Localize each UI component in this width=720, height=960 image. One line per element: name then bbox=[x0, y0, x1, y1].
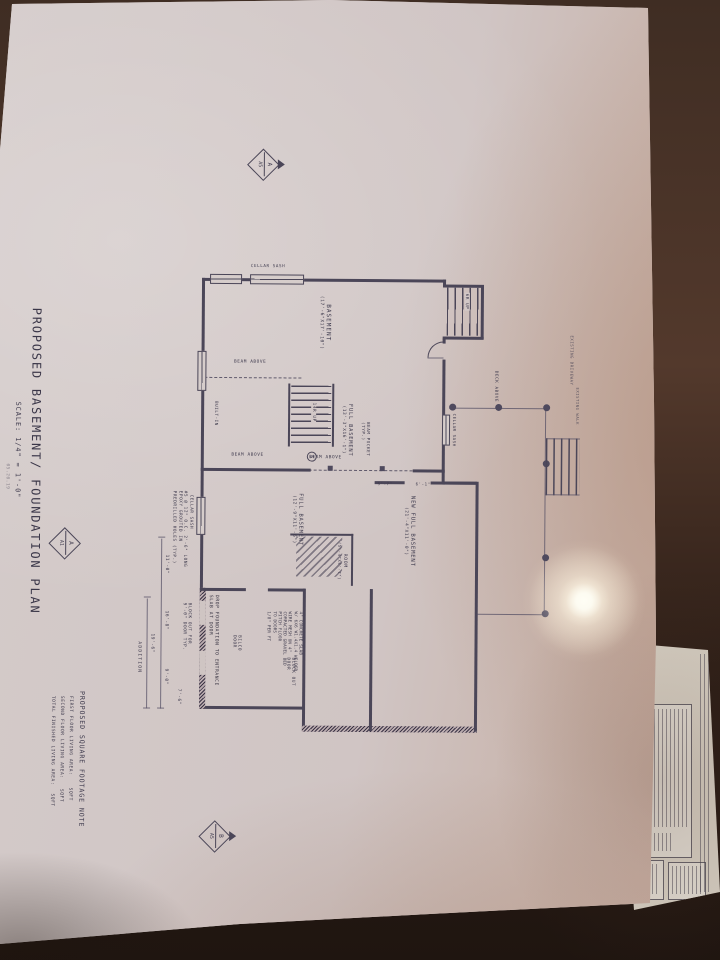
beam-pocket-label: BEAM POCKET (TYP.) bbox=[360, 422, 371, 456]
scale-label: SCALE: 1/4" = 1'-0" bbox=[13, 402, 22, 499]
dimension-tick bbox=[158, 537, 165, 538]
new-foundation-wall bbox=[302, 726, 477, 733]
dim-19-6: 19'-6" bbox=[149, 634, 155, 654]
cellar-sash-window bbox=[196, 497, 205, 535]
dim-9-0: 9'-0" bbox=[163, 669, 169, 685]
dim-5-7: 5'-7" bbox=[378, 481, 393, 486]
cellar-sash-window bbox=[250, 274, 304, 284]
revision-note: 05.20.19 bbox=[4, 463, 10, 489]
drop-foundation-note: DROP FOUNDATION TO ENTRANCE SLAB AT DOOR bbox=[207, 595, 219, 686]
deck-above-label: DECK ABOVE bbox=[494, 371, 499, 402]
block-out-for-line2: 9'-0" DOOR TYP. bbox=[181, 603, 187, 651]
wall bbox=[351, 534, 353, 586]
cellar-sash-label: CELLAR SASH bbox=[452, 414, 457, 447]
cellar-sash-window bbox=[442, 415, 450, 446]
door-block-out bbox=[200, 601, 206, 625]
room-name: FULL BASEMENT bbox=[346, 404, 353, 456]
dim-6-1: 6'-1" bbox=[416, 481, 431, 486]
drop-foundation-line1: DROP FOUNDATION TO ENTRANCE bbox=[212, 595, 218, 686]
marker-divider bbox=[215, 824, 216, 848]
bilco-door-label: BILCO DOOR bbox=[231, 635, 242, 661]
wall bbox=[369, 589, 372, 731]
dimension-tick bbox=[157, 708, 164, 709]
beam-above-label: BEAM ABOVE bbox=[234, 360, 266, 366]
dim-11-0: 11'-0" bbox=[163, 555, 169, 575]
epoxy-line3: PREDRILLED HOLES (TYP.) bbox=[171, 491, 177, 568]
wall bbox=[481, 287, 484, 339]
existing-walk-label: EXISTING WALK bbox=[574, 387, 579, 425]
room-name: FULL BASEMENT bbox=[296, 492, 303, 548]
beam-pocket-line1: BEAM POCKET bbox=[366, 422, 371, 456]
general-notes-block bbox=[650, 704, 692, 858]
section-letter: A bbox=[266, 147, 273, 181]
room-dims: (5'-4"X4'-7") bbox=[336, 542, 341, 580]
stair-up-label: 14R UP bbox=[311, 402, 317, 423]
room-label-basement: BASEMENT (17'-6"X17'-10") bbox=[318, 296, 332, 350]
lally-column bbox=[328, 466, 333, 471]
deck-post bbox=[542, 610, 549, 617]
deck-post bbox=[449, 404, 456, 411]
slab-line4: COMPACTED GRAVEL BED bbox=[282, 611, 288, 671]
room-label-new-full-basement: NEW FULL BASEMENT (21'-4"X11'-0") bbox=[403, 494, 416, 568]
deck-post bbox=[542, 554, 549, 561]
marker-divider bbox=[65, 531, 66, 555]
block-out-for-door-note: BLOCK OUT FOR 9'-0" DOOR TYP. bbox=[181, 603, 192, 651]
wall bbox=[431, 481, 477, 484]
addition-label: ADDITION bbox=[136, 641, 142, 673]
sheet-edge-text bbox=[700, 654, 710, 892]
stair-wall bbox=[332, 384, 334, 447]
room-label-room: ROOM (5'-4"X4'-7") bbox=[336, 542, 347, 580]
drawing-content: 14R UP 6R UP BASEMENT bbox=[0, 0, 652, 932]
marker-divider bbox=[264, 152, 265, 176]
illegible-text bbox=[672, 866, 701, 894]
sqft-row-2: SECOND FLOOR LIVING AREA: SQFT bbox=[58, 696, 64, 802]
concrete-slab-note: 4" CONCRETE SLAB W/ 6X6 W1.4X1.4 WELDED … bbox=[267, 611, 304, 671]
deck-post bbox=[495, 404, 502, 411]
room-dims: (13'-3"X16'-1") bbox=[341, 404, 347, 456]
section-sheet: A5 bbox=[257, 147, 263, 181]
stair-up-label: 6R UP bbox=[465, 293, 470, 311]
drawing-title-bubble: A A1 bbox=[48, 526, 82, 560]
sqft-label: SECOND FLOOR LIVING AREA: bbox=[59, 696, 65, 779]
sheet-number: A1 bbox=[59, 526, 65, 560]
column-mark-circle: 5 bbox=[307, 452, 317, 462]
drawing-title: PROPOSED BASEMENT/ FOUNDATION PLAN bbox=[27, 308, 44, 615]
slab-line1: 4" CONCRETE SLAB bbox=[298, 612, 304, 672]
lally-column bbox=[380, 466, 385, 471]
dim-7-6: 7'-6" bbox=[176, 689, 182, 705]
dim-16-8: 16'-8" bbox=[163, 611, 169, 631]
wall bbox=[268, 588, 305, 591]
deck-outline bbox=[477, 614, 545, 616]
block-out-for-line1: BLOCK OUT FOR bbox=[186, 603, 192, 651]
epoxy-dowel-note: #5 @ 12" O.C. 2'-6" LONG EPOXY GROUTED I… bbox=[171, 491, 188, 568]
room-name: NEW FULL BASEMENT bbox=[408, 494, 416, 568]
wall bbox=[200, 588, 246, 591]
detail-letter: A bbox=[68, 526, 75, 560]
slab-line7: 1/8" PER FT bbox=[267, 611, 273, 671]
illegible-notes-text bbox=[654, 833, 674, 851]
dimension-tick bbox=[144, 596, 151, 597]
exterior-steps bbox=[546, 438, 580, 495]
sqft-suffix: SQFT bbox=[58, 789, 63, 802]
door-leaf bbox=[428, 357, 444, 358]
dimension-line bbox=[146, 598, 148, 708]
section-sheet: A5 bbox=[209, 819, 215, 853]
room-label-full-basement-2: FULL BASEMENT (12'-9"X11'-6") bbox=[291, 491, 304, 547]
wall bbox=[413, 469, 445, 472]
built-in-label: BUILT-IN bbox=[214, 401, 219, 426]
sqft-label: TOTAL FINISHED LIVING AREA: bbox=[50, 696, 56, 785]
room-name: BASEMENT bbox=[324, 296, 332, 350]
sqft-note-heading: PROPOSED SQUARE FOOTAGE NOTE bbox=[77, 691, 86, 827]
blueprint-sheet: 14R UP 6R UP BASEMENT bbox=[0, 0, 720, 960]
illegible-notes-text bbox=[654, 709, 687, 827]
deck-post bbox=[543, 404, 550, 411]
sqft-label: FIRST FLOOR LIVING AREA: bbox=[68, 696, 74, 775]
dimension-tick bbox=[143, 707, 150, 708]
slab-line2: W/ 6X6 W1.4X1.4 WELDED bbox=[293, 612, 299, 672]
wall bbox=[201, 468, 311, 471]
wall bbox=[443, 337, 484, 340]
photo-of-blueprint: 14R UP 6R UP BASEMENT bbox=[0, 0, 720, 960]
sqft-suffix: SQFT bbox=[49, 793, 54, 806]
door-swing-arc bbox=[428, 341, 444, 357]
existing-driveway-label: EXISTING DRIVEWAY bbox=[568, 335, 573, 385]
sqft-row-1: FIRST FLOOR LIVING AREA: SQFT bbox=[67, 696, 73, 801]
section-marker-b: B A5 bbox=[198, 819, 232, 853]
sqft-suffix: SQFT bbox=[67, 788, 72, 801]
wall bbox=[474, 482, 479, 732]
beam-above-line bbox=[204, 377, 301, 379]
epoxy-line1: #5 @ 12" O.C. 2'-6" LONG bbox=[182, 491, 188, 568]
wall bbox=[443, 280, 446, 287]
room-dims: (17'-6"X17'-10") bbox=[318, 296, 324, 350]
cellar-sash-label: CELLAR SASH bbox=[189, 495, 194, 529]
cellar-sash-label: CELLAR SASH bbox=[251, 263, 285, 268]
beam-above-label: BEAM ABOVE bbox=[231, 453, 263, 459]
section-marker-a: A A5 bbox=[247, 147, 281, 181]
wall bbox=[199, 706, 304, 710]
cellar-sash-window bbox=[197, 351, 206, 391]
section-letter: B bbox=[218, 819, 225, 853]
room-label-full-basement: FULL BASEMENT (13'-3"X16'-1") bbox=[341, 404, 354, 456]
room-dims: (12'-9"X11'-6") bbox=[291, 491, 297, 547]
sqft-row-3: TOTAL FINISHED LIVING AREA: SQFT bbox=[49, 696, 55, 807]
cellar-sash-window bbox=[210, 274, 242, 284]
door-block-out bbox=[199, 651, 205, 675]
